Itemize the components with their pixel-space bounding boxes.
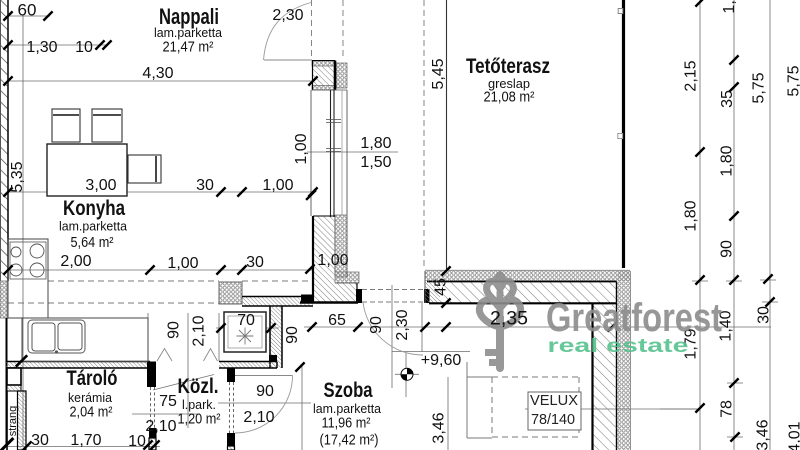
svg-text:l.park.: l.park. [182,398,216,412]
svg-text:2,15: 2,15 [683,60,700,91]
svg-text:4,30: 4,30 [142,65,173,82]
svg-text:Tároló: Tároló [67,367,118,390]
svg-text:2,30: 2,30 [394,309,411,340]
svg-text:1,50: 1,50 [721,0,738,14]
svg-text:Közl.: Közl. [178,375,219,398]
svg-text:1,20 m²: 1,20 m² [178,412,221,428]
svg-text:75: 75 [159,393,177,410]
svg-text:2,04 m²: 2,04 m² [70,405,113,421]
svg-text:5,45: 5,45 [430,58,447,89]
svg-text:90: 90 [719,240,736,258]
svg-text:5,75: 5,75 [786,65,800,96]
svg-text:1,00: 1,00 [293,133,310,164]
svg-text:30: 30 [196,177,214,194]
svg-text:70: 70 [237,312,255,329]
svg-text:VELUX: VELUX [530,393,578,409]
svg-text:1,80: 1,80 [360,135,391,152]
svg-text:1,00: 1,00 [167,255,198,272]
svg-text:78/140: 78/140 [531,412,575,428]
svg-text:lam.parketta: lam.parketta [59,220,127,234]
svg-text:21,47 m²: 21,47 m² [163,40,214,56]
svg-text:10: 10 [128,433,146,450]
svg-text:11,96 m²: 11,96 m² [322,416,371,432]
svg-text:90: 90 [256,383,274,400]
svg-text:2,00: 2,00 [60,253,91,270]
svg-text:30: 30 [756,306,773,324]
svg-text:1,30: 1,30 [26,39,57,56]
svg-text:30: 30 [31,432,49,449]
svg-text:2,10: 2,10 [243,409,274,426]
svg-text:78: 78 [719,400,736,418]
svg-text:2,10: 2,10 [191,315,208,346]
svg-text:5,64 m²: 5,64 m² [71,235,114,251]
svg-text:1,50: 1,50 [360,154,391,171]
svg-text:35: 35 [719,90,736,108]
svg-text:3,00: 3,00 [85,177,116,194]
svg-text:1,80: 1,80 [719,145,736,176]
svg-text:10: 10 [75,39,93,56]
svg-text:lam.parketta: lam.parketta [154,26,222,40]
svg-text:1,80: 1,80 [683,200,700,231]
svg-text:3,46: 3,46 [431,412,448,443]
svg-text:1,70: 1,70 [70,432,101,449]
svg-text:1,00: 1,00 [262,177,293,194]
svg-text:45: 45 [433,278,450,296]
svg-text:2,30: 2,30 [272,7,303,24]
svg-text:Tetőterasz: Tetőterasz [466,55,550,78]
svg-text:1,00: 1,00 [317,252,348,269]
svg-text:90: 90 [284,326,301,344]
svg-text:2,10: 2,10 [145,418,176,435]
svg-text:real estate: real estate [548,336,689,357]
svg-text:5,35: 5,35 [9,161,26,192]
svg-text:90: 90 [368,316,385,334]
svg-text:4,01: 4,01 [787,421,800,450]
svg-text:3,46: 3,46 [755,419,772,450]
svg-text:5,75: 5,75 [751,72,768,103]
svg-text:30: 30 [246,254,264,271]
svg-text:kerámia: kerámia [68,391,112,405]
svg-text:Konyha: Konyha [63,197,125,220]
svg-text:90: 90 [166,321,183,339]
svg-text:strang: strang [7,406,19,437]
svg-text:+9,60: +9,60 [421,352,462,369]
svg-text:lam.parketta: lam.parketta [313,402,381,416]
svg-text:Greatforest: Greatforest [546,296,722,340]
svg-text:(17,42 m²): (17,42 m²) [320,433,379,449]
svg-text:Szoba: Szoba [324,379,373,402]
svg-text:21,08 m²: 21,08 m² [484,90,535,106]
svg-text:60: 60 [18,1,37,20]
svg-text:65: 65 [328,312,346,329]
svg-text:2,35: 2,35 [490,308,528,330]
